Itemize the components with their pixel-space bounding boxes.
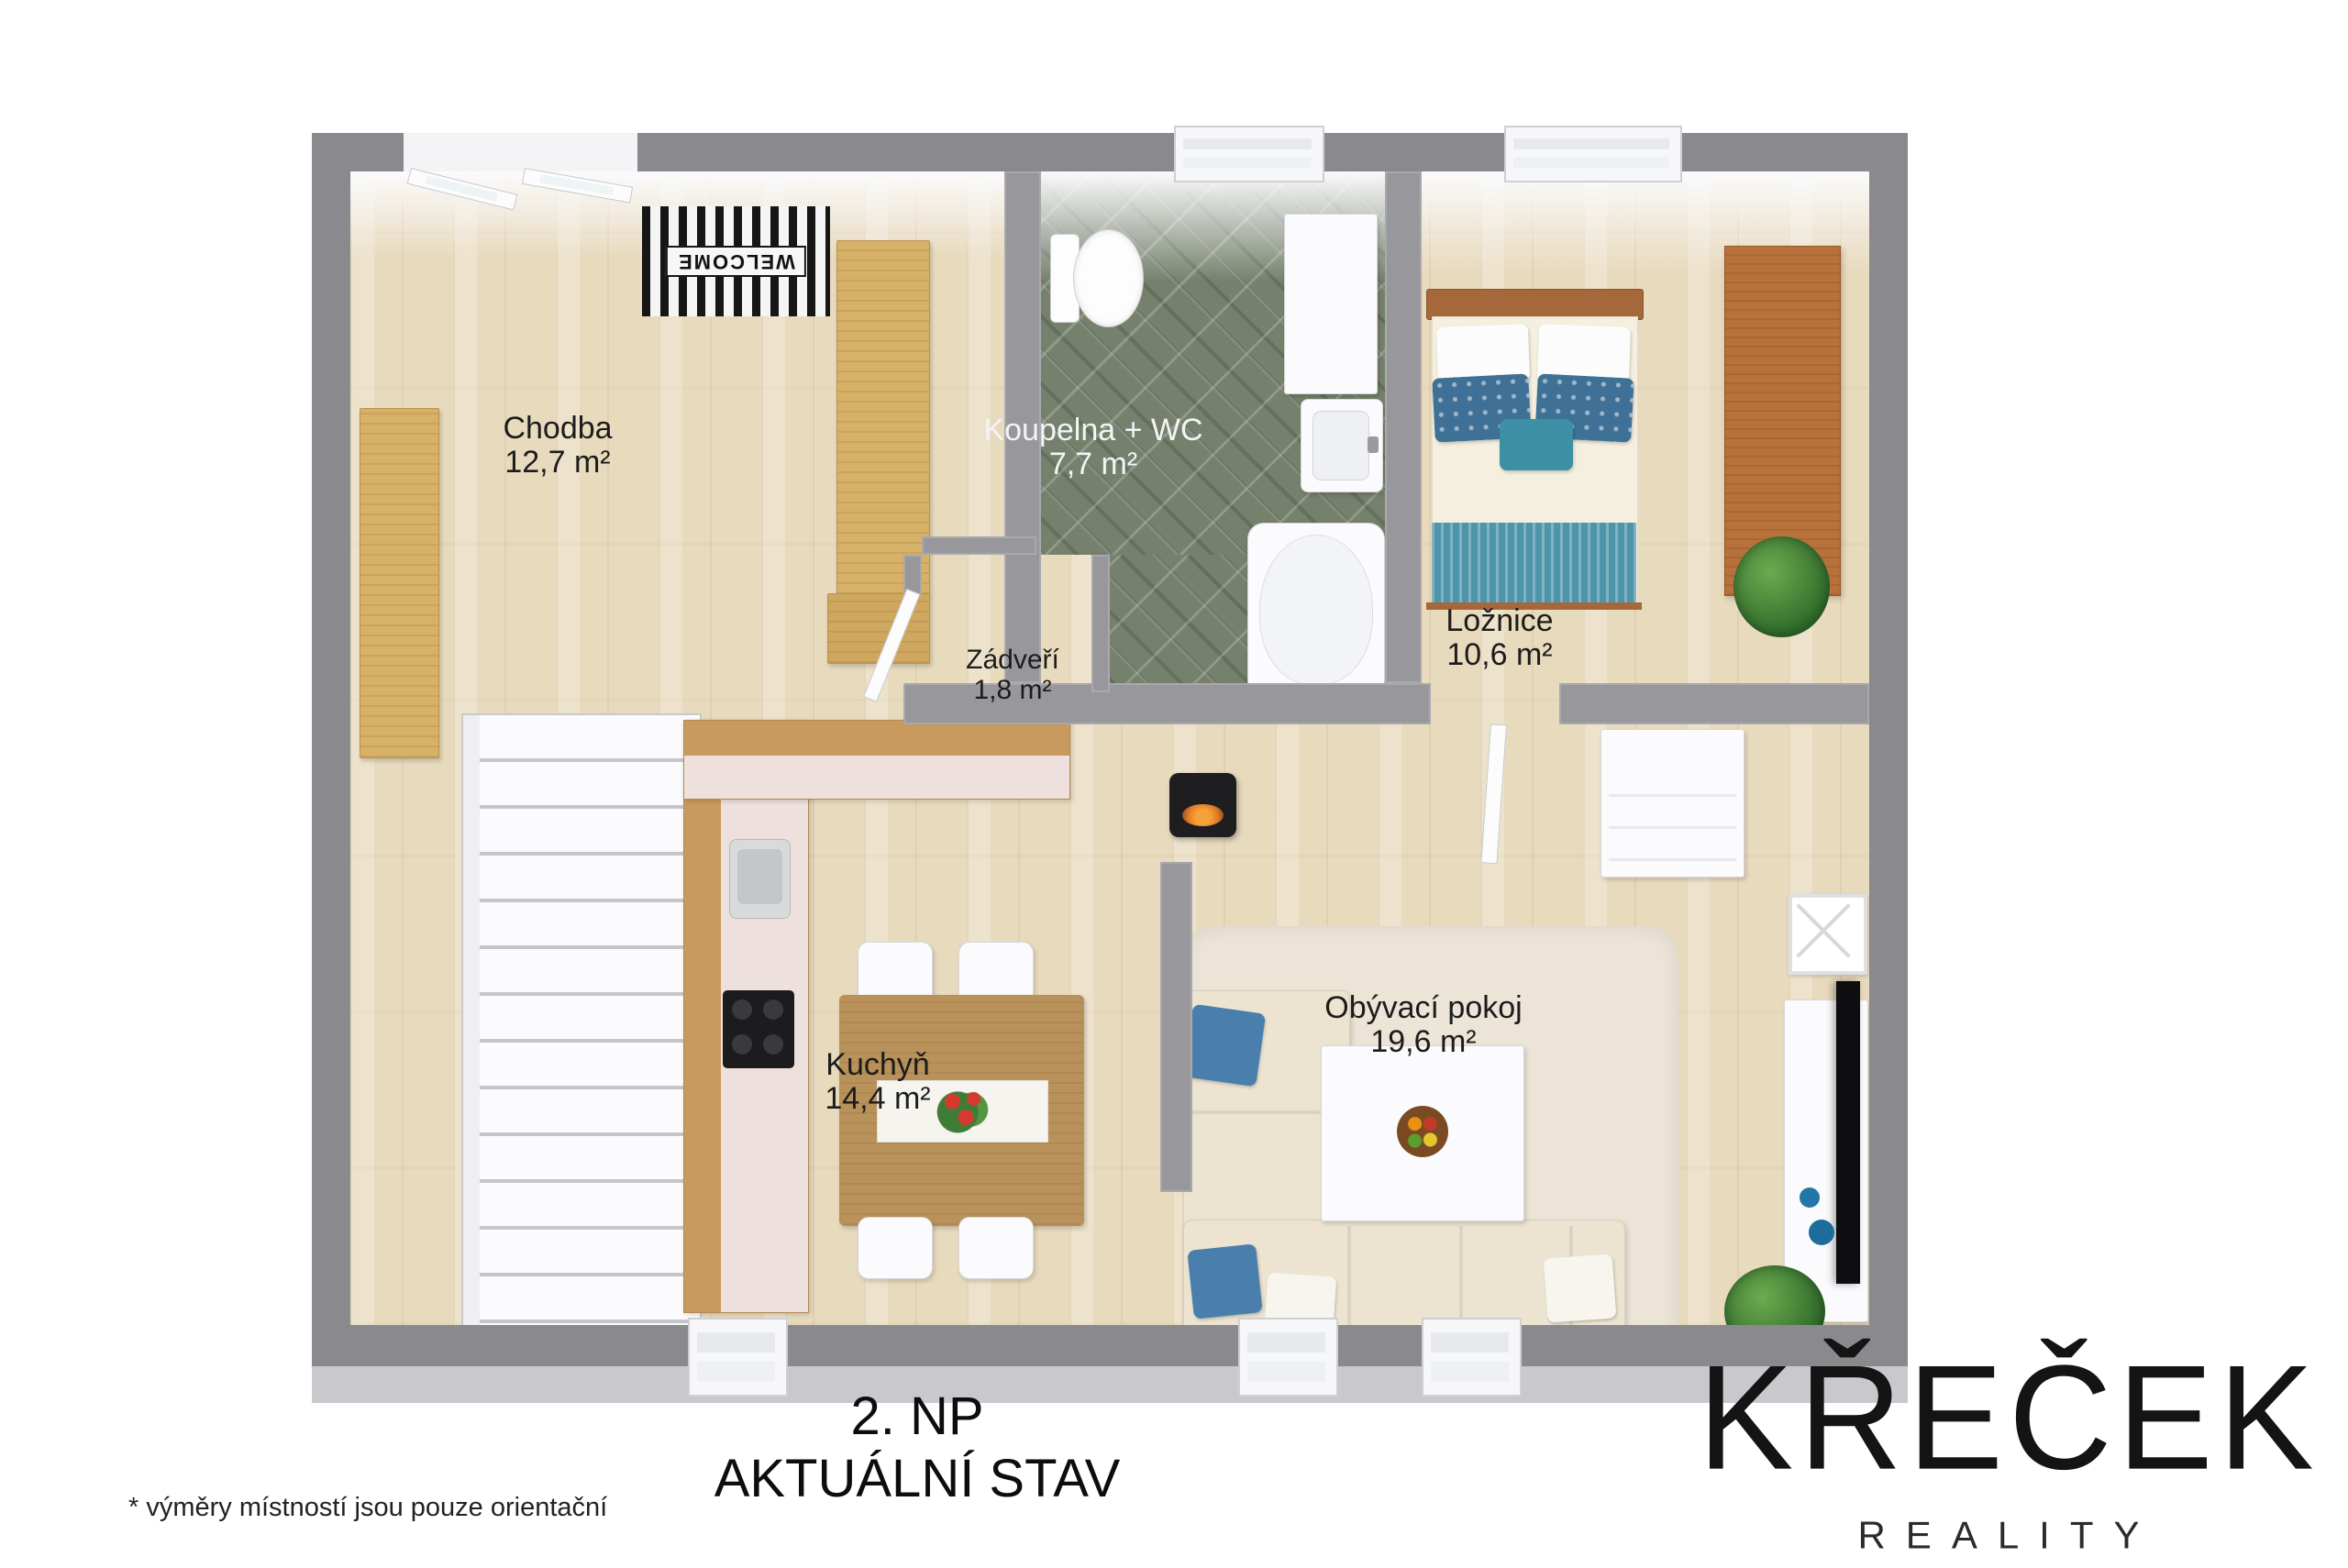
wall-kitchen-living-divider xyxy=(1160,862,1192,1192)
burner xyxy=(763,999,783,1020)
room-label-loznice: Ložnice 10,6 m² xyxy=(1445,604,1553,672)
bed-headboard xyxy=(1426,289,1644,320)
logo-brand-text: KŘEČEK xyxy=(1698,1333,2320,1504)
fire-glow xyxy=(1182,804,1224,826)
room-area: 14,4 m² xyxy=(825,1082,930,1116)
washbasin-sink xyxy=(1312,411,1369,480)
room-name: Zádveří xyxy=(966,645,1059,675)
sofa-pillow-blue xyxy=(1187,1243,1262,1319)
room-area: 7,7 m² xyxy=(983,447,1202,481)
burner xyxy=(732,999,752,1020)
room-area: 10,6 m² xyxy=(1445,638,1553,672)
kitchen-cooktop xyxy=(723,990,794,1068)
bed-blanket xyxy=(1432,523,1636,603)
room-area: 1,8 m² xyxy=(966,675,1059,705)
bedroom-window xyxy=(1504,126,1682,182)
state-title: AKTUÁLNÍ STAV xyxy=(714,1448,1121,1510)
decor-bowl xyxy=(1800,1187,1820,1208)
burner xyxy=(763,1034,783,1055)
room-name: Koupelna + WC xyxy=(983,414,1202,447)
shelf-line xyxy=(1609,858,1736,861)
window-pane xyxy=(697,1332,775,1353)
window-pane xyxy=(1513,157,1669,168)
wall-zadveri-top xyxy=(922,536,1036,555)
hall-wardrobe xyxy=(836,240,930,595)
kitchen-counter-horizontal xyxy=(683,720,1070,800)
bathroom-cabinet xyxy=(1284,214,1378,394)
shelf-line xyxy=(1609,794,1736,797)
bathroom-window xyxy=(1174,126,1324,182)
room-label-kuchyn: Kuchyň 14,4 m² xyxy=(825,1048,930,1116)
room-label-obyvaci-pokoj: Obývací pokoj 19,6 m² xyxy=(1324,991,1522,1059)
footnote: * výměry místností jsou pouze orientační xyxy=(128,1493,607,1523)
room-name: Kuchyň xyxy=(825,1048,930,1082)
floor-lamp xyxy=(1789,894,1867,975)
entry-threshold xyxy=(404,133,637,171)
shelf-line xyxy=(1609,826,1736,829)
plan-title: 2. NP AKTUÁLNÍ STAV xyxy=(714,1386,1121,1510)
room-name: Obývací pokoj xyxy=(1324,991,1522,1025)
window-pane xyxy=(1431,1332,1509,1353)
living-window-right xyxy=(1422,1318,1522,1397)
fireplace-stove xyxy=(1169,773,1236,837)
room-label-chodba: Chodba 12,7 m² xyxy=(503,412,612,480)
welcome-mat: WELCOME xyxy=(642,206,830,316)
washbasin-faucet xyxy=(1368,436,1379,453)
room-area: 19,6 m² xyxy=(1324,1025,1522,1059)
window-pane xyxy=(1247,1362,1325,1382)
coffee-table xyxy=(1321,1045,1524,1221)
window-pane xyxy=(1183,157,1312,168)
floor-plan: WELCOME xyxy=(312,133,1908,1403)
window-pane xyxy=(1183,138,1312,149)
outer-wall-right xyxy=(1869,133,1908,1366)
room-label-zadveri: Zádveří 1,8 m² xyxy=(966,645,1059,705)
dining-chair xyxy=(858,1217,933,1279)
outer-wall-bottom xyxy=(312,1325,1908,1366)
wall-bathroom-bedroom xyxy=(1385,171,1422,683)
window-pane xyxy=(1247,1332,1325,1353)
dining-chair xyxy=(958,1217,1034,1279)
room-name: Chodba xyxy=(503,412,612,446)
bathtub xyxy=(1247,523,1385,697)
logo-subtitle-text: REALITY xyxy=(1698,1514,2320,1558)
bed-accent-pillow xyxy=(1500,419,1573,470)
room-label-koupelna: Koupelna + WC 7,7 m² xyxy=(983,414,1202,481)
sofa-pillow-blue xyxy=(1183,1004,1266,1087)
window-pane xyxy=(1513,138,1669,149)
burner xyxy=(732,1034,752,1055)
wall-horizontal-right xyxy=(1559,683,1869,724)
kitchen-sink xyxy=(729,839,791,919)
flower-vase xyxy=(936,1083,990,1136)
washbasin xyxy=(1301,399,1383,492)
decor-bowl xyxy=(1809,1220,1834,1245)
welcome-mat-text: WELCOME xyxy=(666,246,806,277)
sofa-pillow-white xyxy=(1544,1253,1617,1322)
room-area: 12,7 m² xyxy=(503,446,612,480)
window-pane xyxy=(1431,1362,1509,1382)
staircase xyxy=(463,715,700,1325)
hall-sideboard xyxy=(360,408,439,758)
room-name: Ložnice xyxy=(1445,604,1553,638)
outer-wall-left xyxy=(312,133,350,1366)
tv-screen xyxy=(1836,981,1860,1284)
living-window-left xyxy=(1238,1318,1338,1397)
agency-logo: KŘEČEK REALITY xyxy=(1698,1337,2320,1558)
floor-title: 2. NP xyxy=(714,1386,1121,1448)
living-shelf-unit xyxy=(1600,729,1744,878)
double-bed xyxy=(1426,289,1642,610)
fruit-bowl xyxy=(1397,1106,1448,1157)
bathtub-basin xyxy=(1259,535,1373,685)
toilet-bowl xyxy=(1073,229,1144,327)
toilet xyxy=(1050,225,1142,330)
wall-zadveri-right xyxy=(1091,555,1110,692)
bedroom-plant xyxy=(1733,536,1830,637)
window-pane xyxy=(697,1362,775,1382)
floorplan-canvas: WELCOME xyxy=(0,0,2348,1568)
kitchen-sink-basin xyxy=(737,849,782,904)
